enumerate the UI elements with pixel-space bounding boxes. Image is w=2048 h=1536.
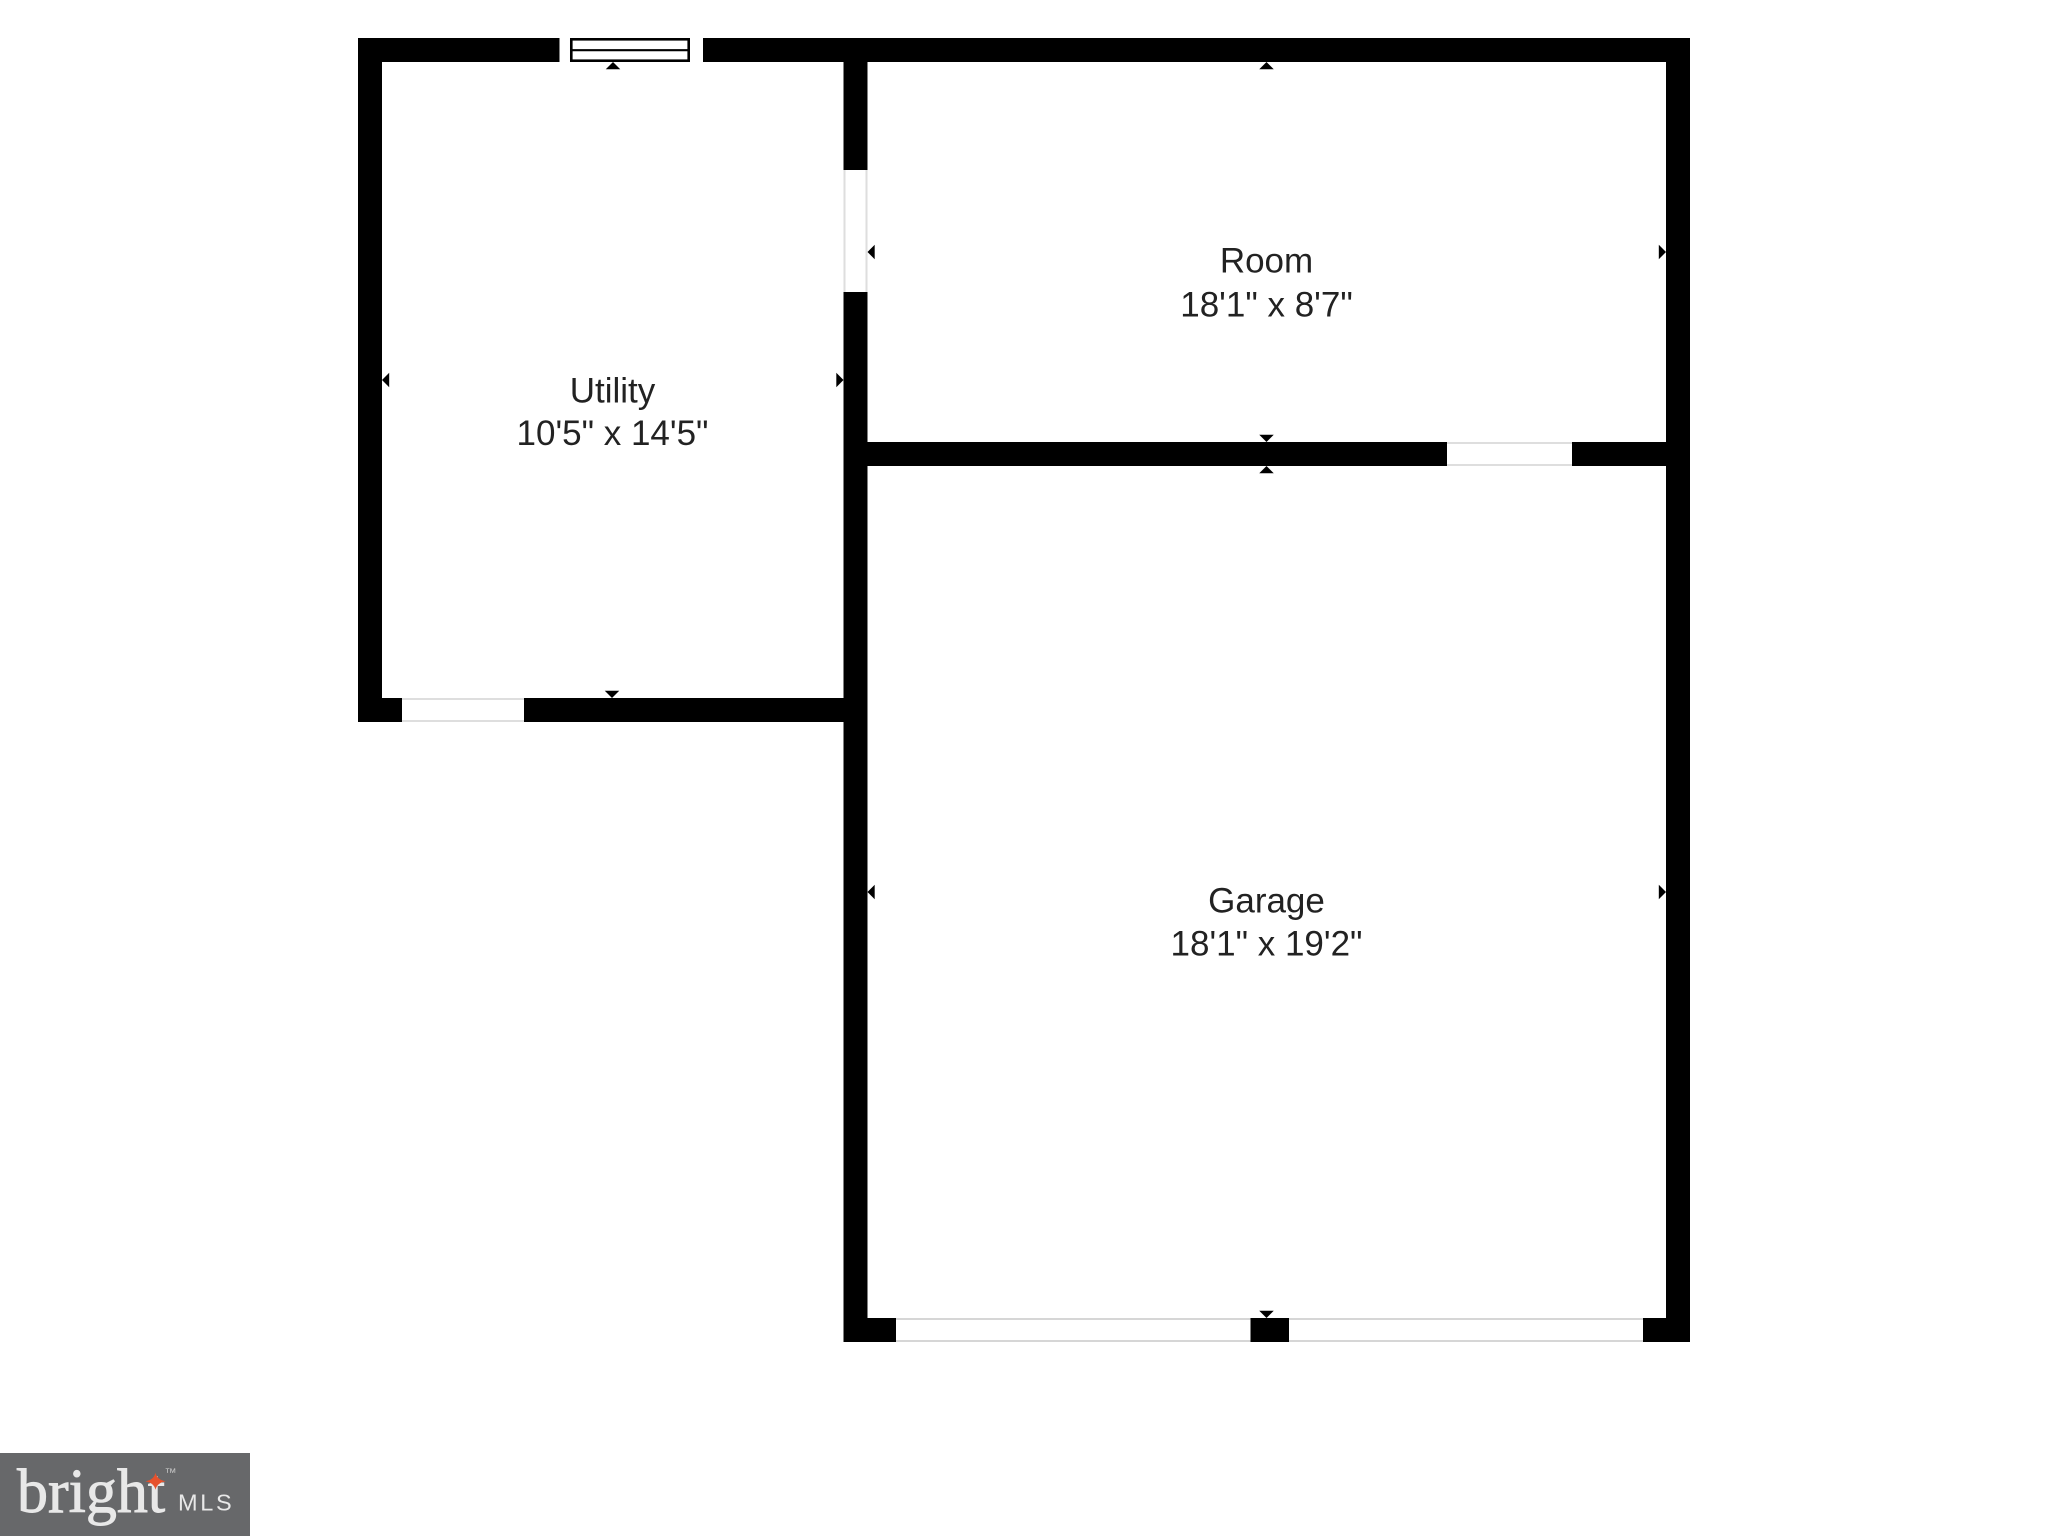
svg-text:bright: bright [17, 1458, 165, 1526]
svg-text:Garage: Garage [1208, 882, 1325, 921]
svg-text:Utility: Utility [570, 372, 656, 411]
svg-text:18'1" x 19'2": 18'1" x 19'2" [1171, 925, 1363, 964]
svg-text:18'1" x 8'7": 18'1" x 8'7" [1180, 286, 1353, 325]
svg-text:MLS: MLS [178, 1490, 234, 1516]
svg-text:Room: Room [1220, 242, 1313, 281]
svg-text:10'5" x 14'5": 10'5" x 14'5" [517, 414, 709, 453]
svg-text:™: ™ [165, 1466, 177, 1480]
